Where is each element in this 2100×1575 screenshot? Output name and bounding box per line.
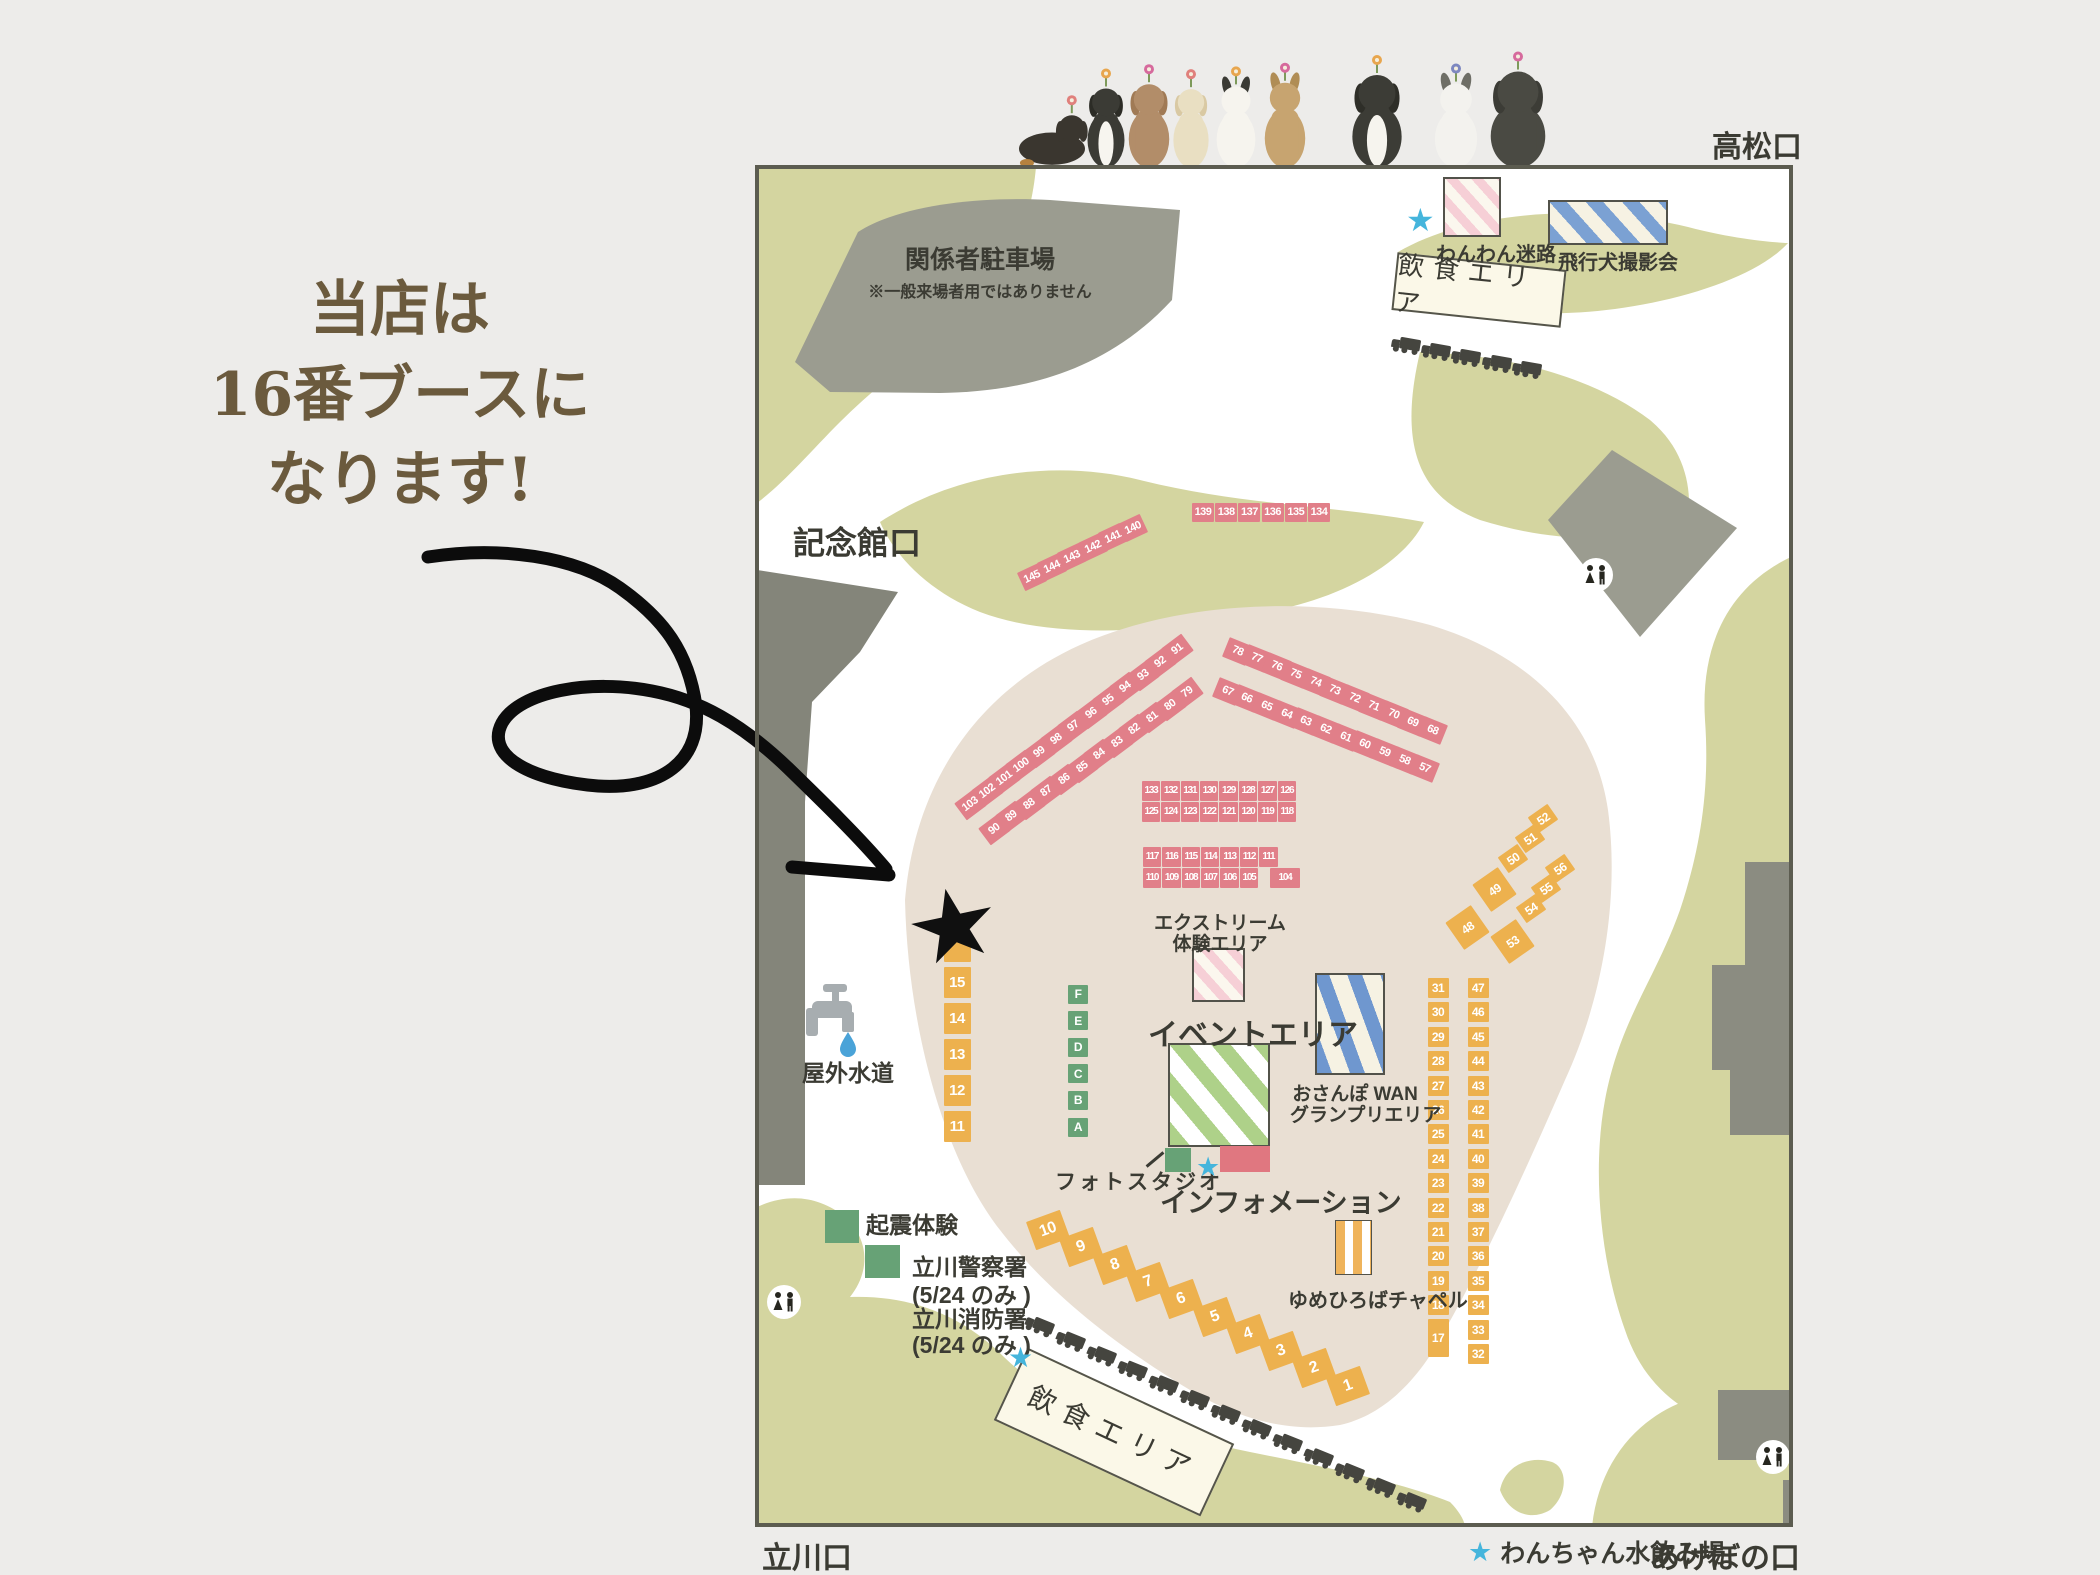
booth-35: 35 (1468, 1271, 1489, 1291)
information-label: インフォメーション (1160, 1181, 1402, 1220)
booth-12: 12 (944, 1075, 971, 1106)
dog-illustration (1019, 95, 1088, 167)
booth-24: 24 (1428, 1149, 1449, 1169)
booth-14: 14 (944, 1003, 971, 1034)
booth-15: 15 (944, 967, 971, 998)
booth-13: 13 (944, 1039, 971, 1070)
booth-36: 36 (1468, 1246, 1489, 1266)
parking-title: 関係者駐車場 (885, 240, 1075, 276)
booth-125: 125 (1142, 802, 1161, 822)
booth-120: 120 (1239, 802, 1258, 822)
booth-118: 118 (1278, 802, 1297, 822)
booth-43: 43 (1468, 1076, 1489, 1096)
entrance-kinenkan: 記念館口 (793, 518, 921, 564)
booth-135: 135 (1285, 503, 1307, 522)
booth-32: 32 (1468, 1344, 1489, 1364)
booth-20: 20 (1428, 1246, 1449, 1266)
chapel-box (1335, 1220, 1372, 1275)
booth-126: 126 (1278, 781, 1297, 801)
information-box (1220, 1146, 1270, 1172)
booth-21: 21 (1428, 1222, 1449, 1242)
booth-131: 131 (1181, 781, 1200, 801)
event-area-label: イベントエリア (1148, 1010, 1358, 1054)
flying-dog-box (1548, 200, 1668, 245)
booth-11: 11 (944, 1111, 971, 1142)
booth-112: 112 (1240, 847, 1259, 867)
booth-121: 121 (1219, 802, 1238, 822)
toilet-icon (1579, 558, 1613, 592)
booth-115: 115 (1182, 847, 1201, 867)
dog-illustration (1352, 55, 1401, 168)
legend-label: わんちゃん水飲み場 (1500, 1534, 1725, 1570)
booth-113: 113 (1220, 847, 1239, 867)
booth-F: F (1068, 985, 1088, 1004)
booth-44: 44 (1468, 1051, 1489, 1071)
booth-23: 23 (1428, 1173, 1449, 1193)
entrance-takamatsu: 高松口 (1712, 122, 1802, 166)
booth-134: 134 (1308, 503, 1330, 522)
maze-label: わんわん迷路 (1436, 238, 1556, 267)
booth-138: 138 (1215, 503, 1237, 522)
booth-124: 124 (1161, 802, 1180, 822)
toilet-icon (767, 1285, 801, 1319)
water-star-icon-top: ★ (1406, 204, 1435, 236)
booth-105: 105 (1240, 868, 1259, 888)
booth-34: 34 (1468, 1295, 1489, 1315)
dog-illustration (1217, 66, 1256, 167)
booth-123: 123 (1181, 802, 1200, 822)
legend: ★ わんちゃん水飲み場 (1468, 1534, 1725, 1570)
flying-dog-label: 飛行犬撮影会 (1558, 246, 1678, 275)
booth-122: 122 (1200, 802, 1219, 822)
booth-30: 30 (1428, 1002, 1449, 1022)
annotation-text: 当店は 16番ブースに なります! (120, 268, 680, 523)
booth-117: 117 (1143, 847, 1162, 867)
quake-label: 起震体験 (866, 1206, 958, 1240)
osanpo-label-2: グランプリエリア (1290, 1100, 1420, 1127)
booth-116: 116 (1162, 847, 1181, 867)
toilet-icon (1756, 1440, 1790, 1474)
water-label: 屋外水道 (802, 1054, 894, 1088)
booth-108: 108 (1182, 868, 1201, 888)
booth-28: 28 (1428, 1051, 1449, 1071)
booth-45: 45 (1468, 1027, 1489, 1047)
booth-B: B (1068, 1091, 1088, 1110)
booth-107: 107 (1201, 868, 1220, 888)
maze-area-box (1443, 177, 1501, 237)
booth-E: E (1068, 1011, 1088, 1030)
water-star-icon-bottom: ★ (1008, 1344, 1033, 1372)
booth-39: 39 (1468, 1173, 1489, 1193)
booth-136: 136 (1262, 503, 1284, 522)
booth-127: 127 (1258, 781, 1277, 801)
police-box (865, 1245, 900, 1278)
legend-star-icon: ★ (1468, 1537, 1492, 1568)
extreme-label-2: 体験エリア (1150, 929, 1290, 956)
booth-130: 130 (1200, 781, 1219, 801)
booth-41: 41 (1468, 1124, 1489, 1144)
booth-D: D (1068, 1038, 1088, 1057)
booth-17: 17 (1428, 1319, 1449, 1357)
dog-illustration (1173, 69, 1208, 168)
booth-37: 37 (1468, 1222, 1489, 1242)
quake-box (825, 1210, 859, 1243)
booth-25: 25 (1428, 1124, 1449, 1144)
water-star-icon-info: ★ (1196, 1154, 1220, 1181)
booth-133: 133 (1142, 781, 1161, 801)
booth-31: 31 (1428, 978, 1449, 998)
booth-47: 47 (1468, 978, 1489, 998)
dog-illustration (1265, 63, 1305, 168)
booth-C: C (1068, 1064, 1088, 1083)
extreme-area-box (1192, 948, 1245, 1002)
booth-27: 27 (1428, 1076, 1449, 1096)
dog-illustrations (1019, 52, 1545, 168)
dog-illustration (1435, 64, 1477, 168)
booth-128: 128 (1239, 781, 1258, 801)
booth-42: 42 (1468, 1100, 1489, 1120)
annotation-line2: 16番ブースに (120, 353, 680, 438)
booth-110: 110 (1143, 868, 1162, 888)
booth-29: 29 (1428, 1027, 1449, 1047)
annotation-line3: なります! (120, 438, 680, 523)
event-map-poster: 当店は 16番ブースに なります! 高松口 立川口 あけぼの口 記念館口 ★ わ… (0, 0, 2100, 1575)
booth-137: 137 (1238, 503, 1260, 522)
booth-111: 111 (1259, 847, 1278, 867)
annotation-line1: 当店は (120, 268, 680, 353)
booth-46: 46 (1468, 1002, 1489, 1022)
booth-33: 33 (1468, 1320, 1489, 1340)
chapel-label: ゆめひろばチャペル (1288, 1284, 1468, 1313)
dog-illustration (1491, 52, 1546, 168)
entrance-tachikawa: 立川口 (762, 1533, 852, 1575)
booth-104: 104 (1270, 868, 1300, 888)
parking-note: ※一般来場者用ではありません (855, 278, 1105, 302)
booth-114: 114 (1201, 847, 1220, 867)
booth-22: 22 (1428, 1198, 1449, 1218)
dog-illustration (1088, 69, 1125, 168)
booth-A: A (1068, 1118, 1088, 1137)
event-area-box (1168, 1043, 1270, 1147)
booth-106: 106 (1220, 868, 1239, 888)
booth-119: 119 (1258, 802, 1277, 822)
booth-40: 40 (1468, 1149, 1489, 1169)
booth-132: 132 (1161, 781, 1180, 801)
booth-139: 139 (1192, 503, 1214, 522)
dog-illustration (1129, 64, 1169, 168)
booth-38: 38 (1468, 1198, 1489, 1218)
booth-129: 129 (1219, 781, 1238, 801)
booth-109: 109 (1162, 868, 1181, 888)
